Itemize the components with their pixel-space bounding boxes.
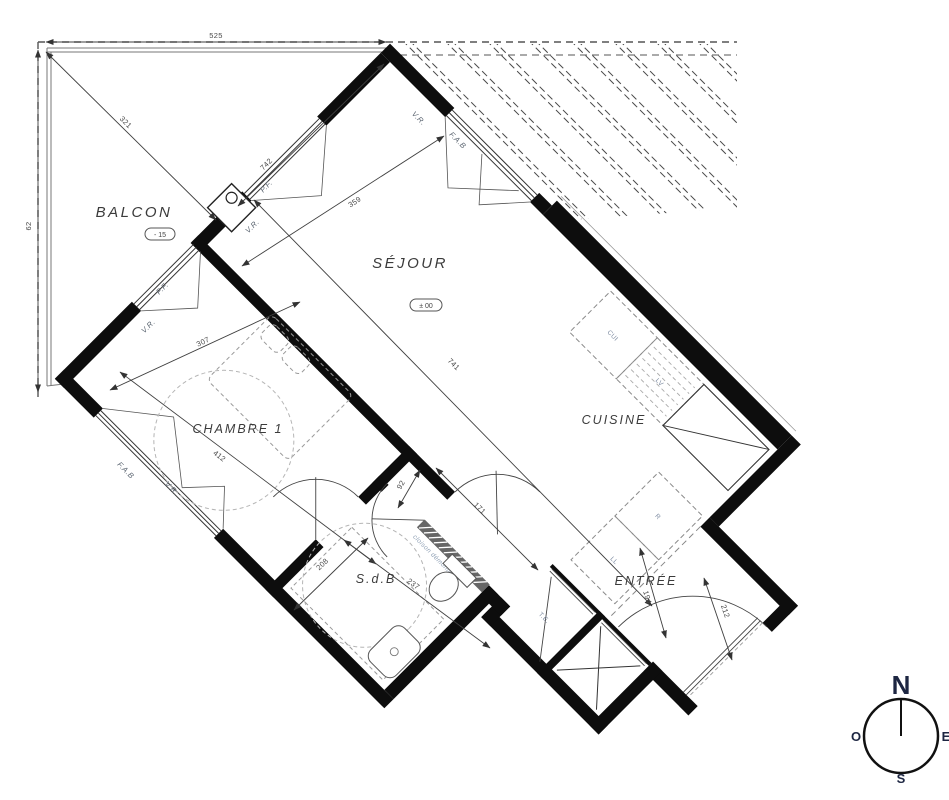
kitchen-appliances: CUI LV R LL	[456, 291, 769, 604]
dimension-labels: 525 62 321 742 359 741 307 412 92 171 23…	[24, 31, 732, 619]
compass-west-label: O	[851, 729, 861, 744]
appliance-label-washer: LL	[608, 556, 619, 567]
room-label-cuisine: CUISINE	[582, 413, 647, 427]
dim-sejour-length: 741	[446, 356, 462, 372]
dim-balcony-wall: 742	[258, 156, 274, 172]
level-badge-sejour-text: ± 00	[419, 303, 433, 310]
window-swings	[73, 62, 540, 529]
dim-sdb-door: 92	[395, 479, 407, 491]
dim-sdb-side: 171	[472, 500, 488, 516]
appliance-label-cui: CUI	[606, 329, 620, 343]
appliance-label-fridge: R	[653, 513, 662, 522]
compass-east-label: E	[942, 729, 949, 744]
dim-entree-width: 194	[641, 590, 653, 605]
floor-plan-drawing: cloison démontable	[0, 0, 949, 800]
dim-top: 525	[209, 31, 222, 40]
window-label-sejour-vr: V.R.	[243, 217, 261, 235]
room-label-sejour: SÉJOUR	[372, 255, 448, 272]
dimension-lines	[38, 42, 732, 660]
window-label-chambre-vr: V.R.	[139, 317, 157, 335]
level-badge-balcon-text: - 15	[154, 232, 166, 239]
floor-plan-page: cloison démontable	[0, 0, 949, 800]
dim-sdb-diagonal: 237	[405, 576, 421, 591]
room-label-chambre: CHAMBRE 1	[193, 422, 284, 436]
dim-left: 62	[24, 222, 33, 231]
room-label-entree: ENTRÉE	[615, 573, 678, 588]
window-label-chambre-s-fab: F.A.B	[115, 460, 136, 481]
room-label-balcon: BALCON	[96, 204, 173, 221]
dim-sdb-width: 208	[314, 556, 330, 572]
compass-rose: N O E S	[851, 670, 949, 786]
window-label-chambre-s-vr: V.R.	[163, 479, 181, 497]
window-labels: V.R. F.A.B P.F. V.R. P.F. V.R. F.A.B V.R…	[115, 109, 468, 497]
compass-south-label: S	[897, 771, 906, 786]
dim-balcony-diagonal: 321	[118, 114, 134, 130]
dim-entree-length: 212	[719, 603, 732, 619]
compass-north-label: N	[892, 670, 911, 700]
dim-chambre-width: 307	[195, 335, 211, 349]
entree-cuisine-boundary	[609, 527, 700, 618]
window-label-chambre-pf: P.F.	[154, 280, 170, 296]
appliance-label-te: T.E.	[537, 611, 551, 625]
window-label-sejour-pf: P.F.	[258, 178, 274, 194]
window-label-north-fab: F.A.B	[447, 130, 468, 151]
window-label-north-vr: V.R.	[410, 109, 428, 127]
room-label-sdb: S.d.B	[356, 572, 397, 586]
hatch-above-zone	[360, 40, 913, 250]
walls	[55, 39, 880, 800]
